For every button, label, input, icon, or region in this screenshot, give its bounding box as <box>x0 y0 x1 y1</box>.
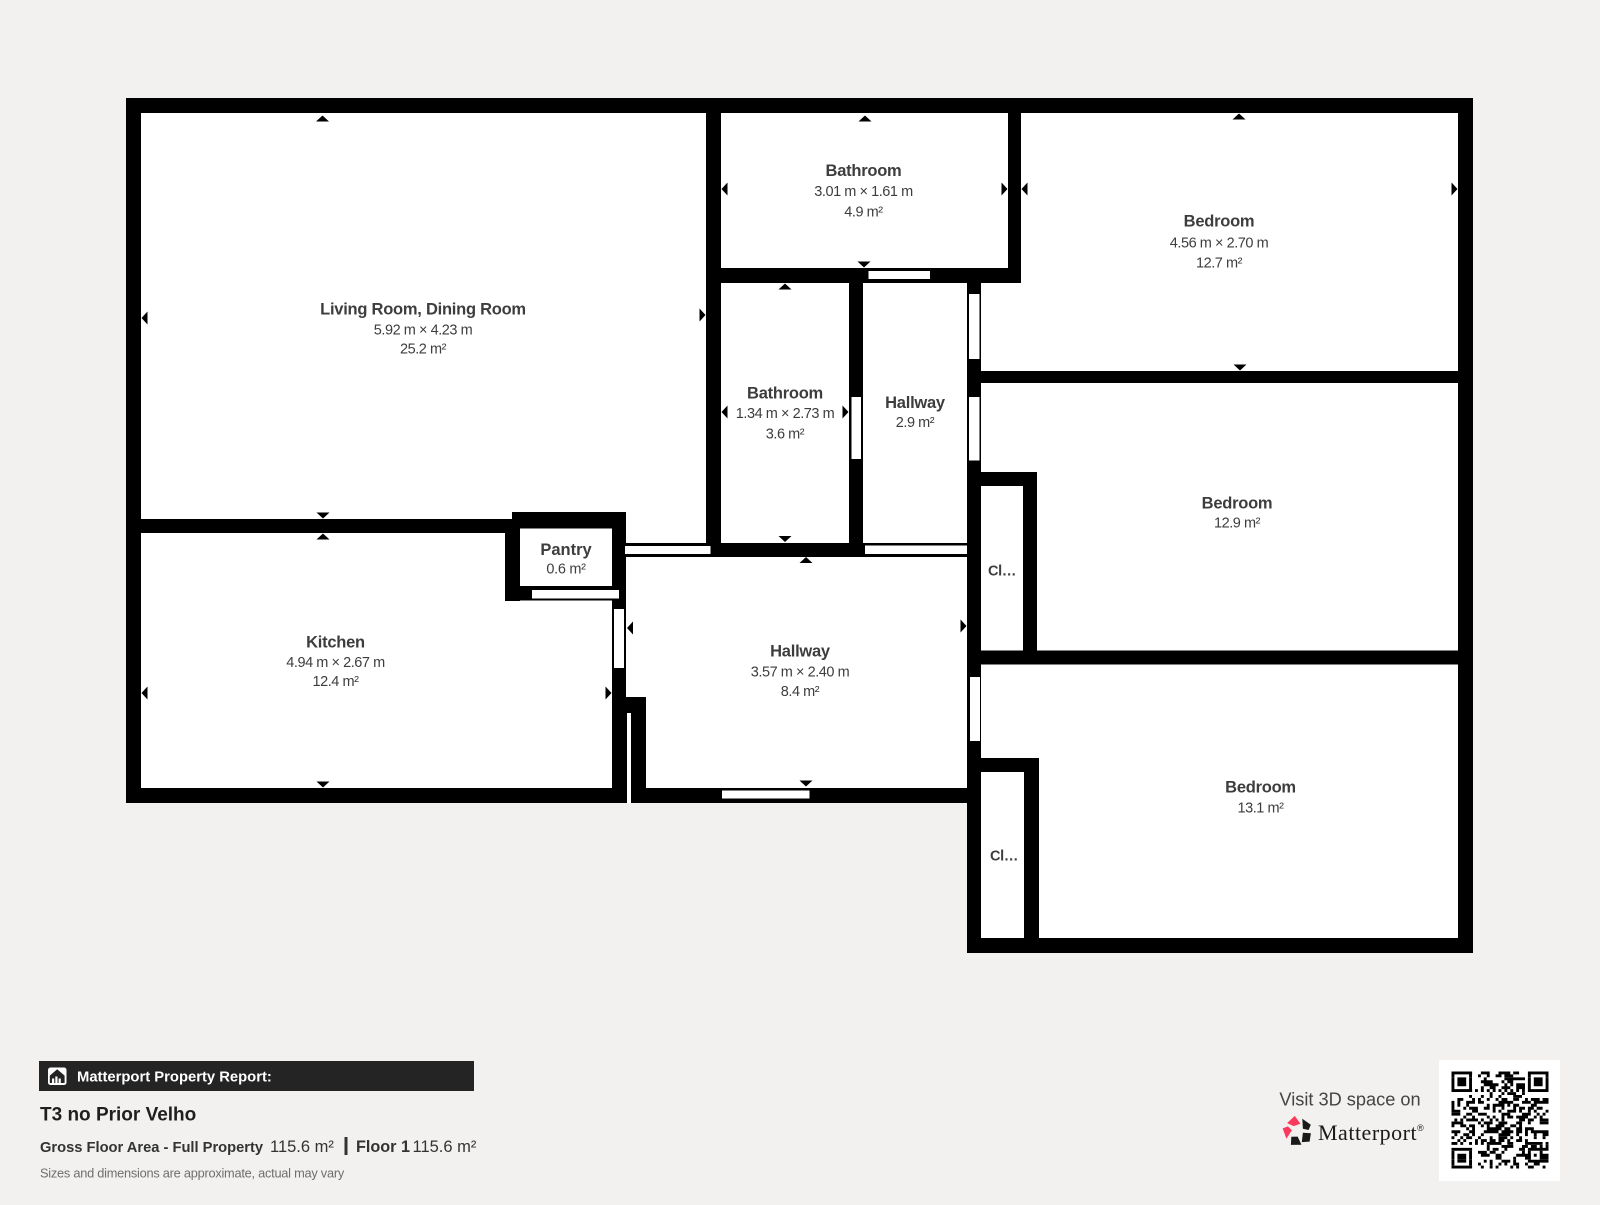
svg-text:Visit 3D space on: Visit 3D space on <box>1279 1090 1420 1110</box>
svg-text:T3 no Prior Velho: T3 no Prior Velho <box>40 1105 196 1126</box>
svg-text:Hallway: Hallway <box>770 643 831 661</box>
svg-text:8.4 m²: 8.4 m² <box>781 684 820 700</box>
svg-text:1.34 m × 2.73 m: 1.34 m × 2.73 m <box>736 406 835 422</box>
svg-text:Matterport®: Matterport® <box>1318 1120 1424 1145</box>
svg-text:115.6 m²: 115.6 m² <box>413 1138 477 1156</box>
svg-text:4.9 m²: 4.9 m² <box>844 205 883 221</box>
svg-text:3.57 m × 2.40 m: 3.57 m × 2.40 m <box>751 665 850 681</box>
svg-text:12.9 m²: 12.9 m² <box>1214 516 1261 532</box>
svg-text:3.6 m²: 3.6 m² <box>766 427 805 443</box>
svg-text:3.01 m × 1.61 m: 3.01 m × 1.61 m <box>814 184 913 200</box>
svg-text:Kitchen: Kitchen <box>306 634 365 652</box>
svg-text:4.94 m × 2.67 m: 4.94 m × 2.67 m <box>286 655 385 671</box>
svg-text:25.2 m²: 25.2 m² <box>400 342 447 358</box>
svg-text:5.92 m × 4.23 m: 5.92 m × 4.23 m <box>374 323 473 339</box>
svg-text:Cl…: Cl… <box>990 849 1018 865</box>
svg-text:Cl…: Cl… <box>988 564 1016 580</box>
svg-text:12.7 m²: 12.7 m² <box>1196 256 1243 272</box>
svg-text:Hallway: Hallway <box>885 394 946 412</box>
svg-text:Bedroom: Bedroom <box>1184 213 1255 231</box>
svg-text:0.6 m²: 0.6 m² <box>546 562 586 578</box>
svg-text:12.4 m²: 12.4 m² <box>312 674 359 690</box>
svg-text:Matterport Property Report:: Matterport Property Report: <box>77 1070 272 1086</box>
svg-text:Sizes and dimensions are appro: Sizes and dimensions are approximate, ac… <box>40 1166 345 1181</box>
svg-text:Gross Floor Area - Full Proper: Gross Floor Area - Full Property <box>40 1140 264 1156</box>
svg-text:4.56 m × 2.70 m: 4.56 m × 2.70 m <box>1170 236 1269 252</box>
svg-text:Bedroom: Bedroom <box>1225 779 1296 797</box>
svg-text:Pantry: Pantry <box>540 541 592 559</box>
svg-text:Bedroom: Bedroom <box>1202 495 1273 513</box>
svg-text:Bathroom: Bathroom <box>747 385 823 403</box>
svg-text:2.9 m²: 2.9 m² <box>896 415 935 431</box>
svg-text:115.6 m²: 115.6 m² <box>270 1138 334 1156</box>
svg-text:13.1 m²: 13.1 m² <box>1237 801 1284 817</box>
svg-text:Living Room, Dining Room: Living Room, Dining Room <box>320 301 526 319</box>
svg-text:Bathroom: Bathroom <box>826 162 902 180</box>
svg-text:Floor 1: Floor 1 <box>356 1138 410 1156</box>
